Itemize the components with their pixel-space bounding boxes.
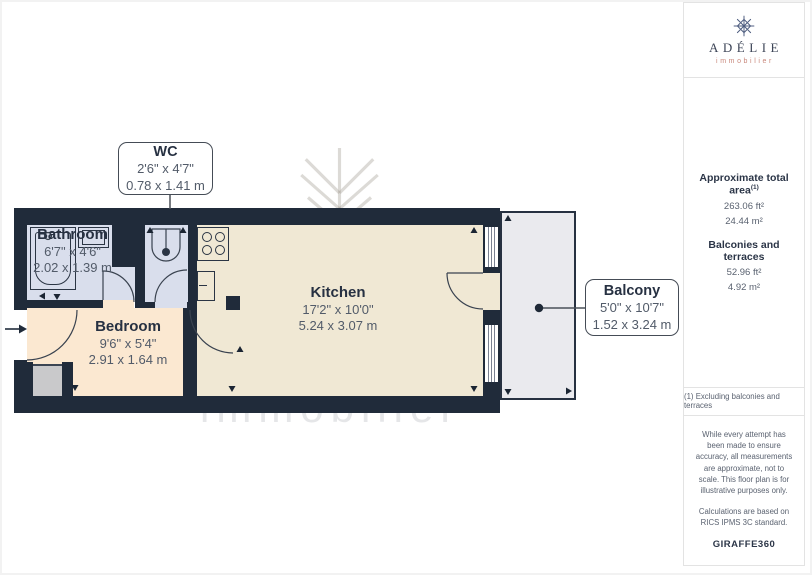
callout-balcony: Balcony 5'0" x 10'7" 1.52 x 3.24 m xyxy=(585,279,679,336)
wall-bottom xyxy=(14,396,500,413)
snowflake-icon xyxy=(733,15,755,37)
room-label-bathroom: Bathroom 6'7" x 4'6" 2.02 x 1.39 m xyxy=(10,226,135,276)
kitchen-name: Kitchen xyxy=(258,284,418,302)
wall-right-a xyxy=(483,208,500,227)
bedroom-imperial: 9'6" x 5'4" xyxy=(50,336,206,352)
bathroom-name: Bathroom xyxy=(10,226,135,244)
bedroom-name: Bedroom xyxy=(50,318,206,336)
balcony-area-ft: 52.96 ft² xyxy=(727,267,762,278)
burner-icon xyxy=(202,245,212,255)
bedroom-metric: 2.91 x 1.64 m xyxy=(50,352,206,368)
footnote: (1) Excluding balconies and terraces xyxy=(684,388,804,416)
disclaimer: While every attempt has been made to ens… xyxy=(684,416,804,565)
sidebar: ADÉLIE immobilier Approximate total area… xyxy=(683,2,805,566)
bathroom-doorway xyxy=(103,300,134,308)
wc-imperial: 2'6" x 4'7" xyxy=(137,161,194,177)
entry-arrow-icon xyxy=(5,325,27,334)
wall-bathroom-bottom xyxy=(27,300,103,308)
stove xyxy=(197,227,229,261)
balcony-area-m: 4.92 m² xyxy=(728,282,760,293)
page: ADÉLIE immobilier xyxy=(0,0,812,575)
balcony-metric: 1.52 x 3.24 m xyxy=(593,317,672,333)
kitchen-metric: 5.24 x 3.07 m xyxy=(258,318,418,334)
balcony-deck xyxy=(500,211,576,400)
burner-icon xyxy=(215,232,225,242)
room-label-kitchen: Kitchen 17'2" x 10'0" 5.24 x 3.07 m xyxy=(258,284,418,334)
brand-tagline: immobilier xyxy=(714,58,774,65)
room-label-bedroom: Bedroom 9'6" x 5'4" 2.91 x 1.64 m xyxy=(50,318,206,368)
total-area-label: Approximate total area(1) xyxy=(688,172,800,197)
bathroom-metric: 2.02 x 1.39 m xyxy=(10,260,135,276)
wall-right-b xyxy=(483,267,500,273)
footnote-marker: (1) xyxy=(751,184,759,191)
giraffe360-suffix: 360 xyxy=(758,539,775,550)
brand-logo: ADÉLIE immobilier xyxy=(684,3,804,78)
wall-right-d xyxy=(483,382,500,413)
wall-right-c xyxy=(483,310,500,325)
wc-floor xyxy=(145,225,188,302)
giraffe360-logo: GIRAFFE360 xyxy=(693,538,795,552)
wall-wc-right xyxy=(188,225,197,308)
wall-top xyxy=(14,208,500,225)
kitchen-imperial: 17'2" x 10'0" xyxy=(258,302,418,318)
footnote-text: (1) Excluding balconies and terraces xyxy=(684,392,804,410)
balcony-area-label: Balconies and terraces xyxy=(688,239,800,263)
kitchen-sink-detail xyxy=(199,285,207,286)
kitchen-sink xyxy=(197,271,215,301)
wc-name: WC xyxy=(153,143,177,161)
burner-icon xyxy=(202,232,212,242)
disclaimer-accuracy: While every attempt has been made to ens… xyxy=(693,429,795,497)
balcony-name: Balcony xyxy=(604,282,660,300)
wall-bathroom-wc-lower xyxy=(135,267,145,308)
disclaimer-standard: Calculations are based on RICS IPMS 3C s… xyxy=(693,506,795,529)
giraffe360-name: GIRAFFE xyxy=(713,539,758,550)
total-area-m: 24.44 m² xyxy=(725,216,763,227)
wall-kitchen-door-jamb xyxy=(226,296,240,310)
window-lower xyxy=(483,325,500,382)
area-summary: Approximate total area(1) 263.06 ft² 24.… xyxy=(684,78,804,388)
wc-metric: 0.78 x 1.41 m xyxy=(126,178,205,194)
balcony-imperial: 5'0" x 10'7" xyxy=(600,300,664,316)
window-upper xyxy=(483,227,500,267)
closet-nook xyxy=(33,364,62,396)
callout-wc: WC 2'6" x 4'7" 0.78 x 1.41 m xyxy=(118,142,213,195)
wall-wc-bottom-left xyxy=(145,302,155,308)
total-area-ft: 263.06 ft² xyxy=(724,201,764,212)
burner-icon xyxy=(215,245,225,255)
bathroom-imperial: 6'7" x 4'6" xyxy=(10,244,135,260)
balcony-doorway xyxy=(483,273,500,310)
brand-name: ADÉLIE xyxy=(705,40,783,56)
